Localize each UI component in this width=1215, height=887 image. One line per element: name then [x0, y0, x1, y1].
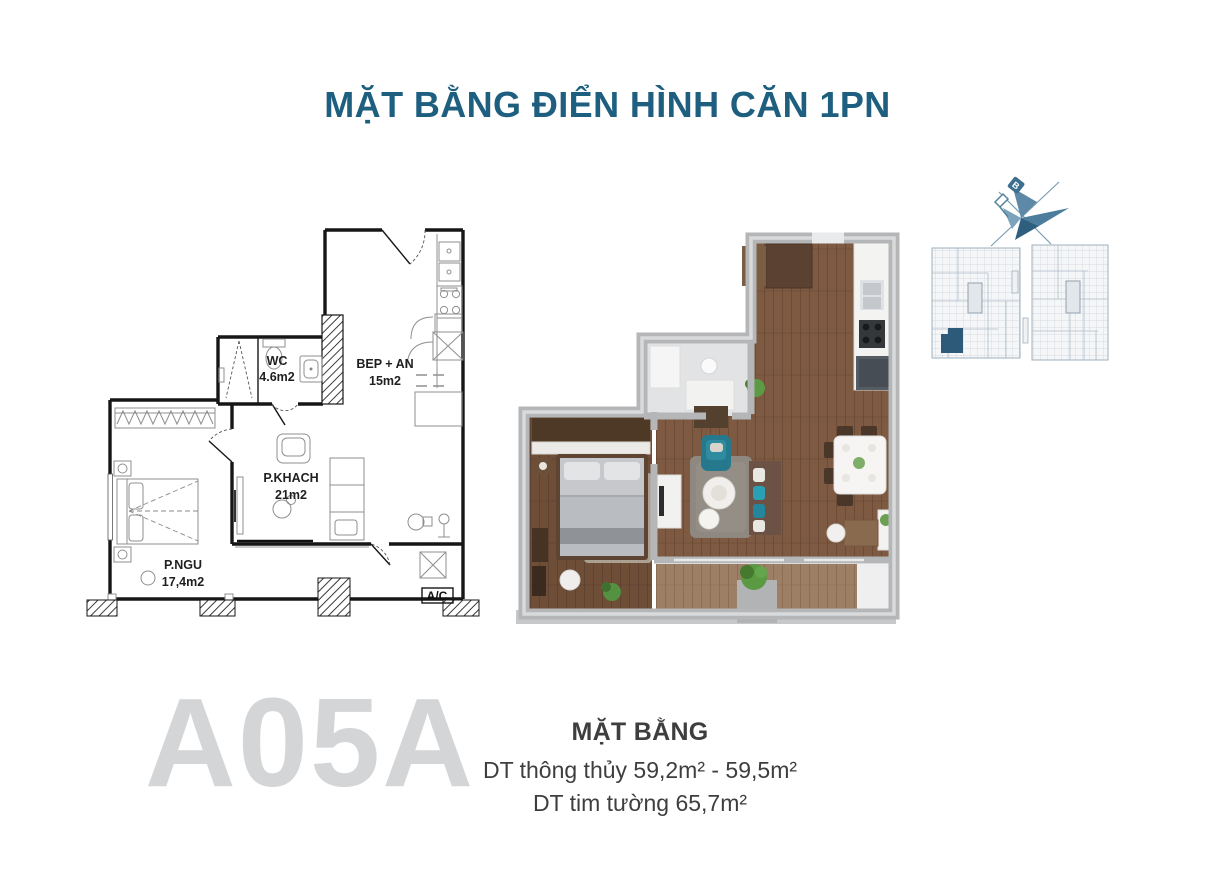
room-area-living: 21m2: [275, 488, 307, 502]
room-label-kitchen: BEP + AN: [356, 357, 413, 371]
keyplan-link-bridge: [1012, 271, 1018, 293]
floorplan-3d: [498, 228, 910, 626]
kitchen-fixtures: [407, 234, 463, 426]
keyplan-right-tower: [1032, 245, 1108, 360]
compass-north-icon: B: [985, 172, 1075, 252]
ac-label: A/C: [427, 589, 448, 603]
dining-3d: [824, 426, 896, 550]
keyplan-left-tower: [932, 248, 1020, 358]
site-keyplan: [928, 243, 1113, 363]
room-label-living: P.KHACH: [263, 471, 318, 485]
room-labels-2d: WC 4.6m2 BEP + AN 15m2 P.KHACH 21m2 P.NG…: [162, 354, 448, 603]
room-area-bedroom: 17,4m2: [162, 575, 204, 589]
unit-area-gross: DT tim tường 65,7m²: [430, 790, 850, 817]
unit-area-clear: DT thông thủy 59,2m² - 59,5m²: [430, 757, 850, 784]
room-label-wc: WC: [267, 354, 288, 368]
door-swings: [209, 230, 425, 565]
unit-info: MẶT BẰNG DT thông thủy 59,2m² - 59,5m² D…: [430, 718, 850, 823]
brochure-page: MẶT BẰNG ĐIỂN HÌNH CĂN 1PN: [0, 0, 1215, 887]
keyplan-link-bridge: [1023, 318, 1028, 343]
living-furniture: [235, 434, 450, 540]
unit-info-heading: MẶT BẰNG: [430, 718, 850, 747]
room-area-wc: 4.6m2: [259, 370, 294, 384]
room-area-kitchen: 15m2: [369, 374, 401, 388]
page-title: MẶT BẰNG ĐIỂN HÌNH CĂN 1PN: [0, 84, 1215, 126]
room-label-bedroom: P.NGU: [164, 558, 202, 572]
floorplan-2d: WC 4.6m2 BEP + AN 15m2 P.KHACH 21m2 P.NG…: [85, 222, 480, 630]
wc-fixtures: [219, 339, 322, 398]
